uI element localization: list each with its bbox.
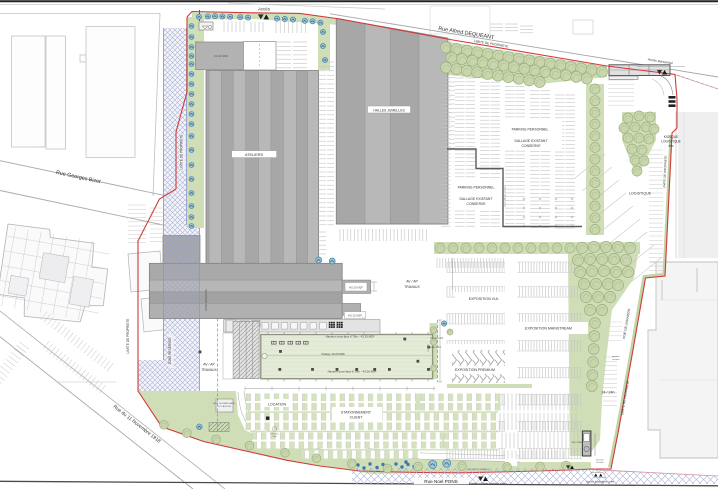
svg-text:41.20 M2F: 41.20 M2F bbox=[214, 54, 229, 58]
svg-text:EXPOSITION PREMIUM: EXPOSITION PREMIUM bbox=[455, 368, 495, 372]
svg-text:Clim: Clim bbox=[272, 436, 277, 438]
svg-text:HS 20 M2F: HS 20 M2F bbox=[348, 313, 362, 317]
svg-text:EXPOSITION MAINSTREAM: EXPOSITION MAINSTREAM bbox=[525, 327, 572, 331]
svg-text:Rue Noel PONS: Rue Noel PONS bbox=[424, 479, 457, 484]
svg-text:PARKING PERSONNEL: PARKING PERSONNEL bbox=[512, 127, 549, 131]
svg-text:Accès logistique crée: Accès logistique crée bbox=[586, 480, 615, 484]
svg-text:AV / AP: AV / AP bbox=[406, 279, 418, 283]
svg-text:TRAVAUX: TRAVAUX bbox=[404, 285, 420, 289]
svg-text:HS 20 M2F: HS 20 M2F bbox=[349, 286, 363, 290]
svg-text:Accès: Accès bbox=[258, 7, 270, 12]
svg-text:TRAVAUX: TRAVAUX bbox=[201, 368, 217, 372]
svg-text:ZONE RESERVEE: ZONE RESERVEE bbox=[204, 289, 208, 311]
svg-text:PG Ultra: PG Ultra bbox=[270, 433, 279, 436]
svg-text:AV / AP: AV / AP bbox=[203, 362, 215, 366]
svg-text:CLIENT: CLIENT bbox=[350, 416, 364, 420]
svg-text:RE 15 M2F: RE 15 M2F bbox=[572, 442, 583, 444]
svg-text:STATIONNEMENT: STATIONNEMENT bbox=[341, 411, 372, 415]
svg-text:LOGISTIQUE: LOGISTIQUE bbox=[661, 140, 680, 144]
svg-text:barrière: barrière bbox=[612, 355, 620, 358]
svg-text:KIOSQUE: KIOSQUE bbox=[664, 135, 679, 139]
svg-text:LOGISTIQUE: LOGISTIQUE bbox=[629, 191, 652, 195]
svg-text:PARKING PERSONNEL: PARKING PERSONNEL bbox=[458, 185, 495, 189]
svg-text:ZONE RESERVEE: ZONE RESERVEE bbox=[168, 337, 172, 364]
svg-text:CONSERVE: CONSERVE bbox=[522, 144, 542, 148]
svg-text:PORTAIL COULISSANT: PORTAIL COULISSANT bbox=[467, 468, 489, 471]
svg-text:levante: levante bbox=[612, 358, 620, 361]
svg-text:Hauteur sous-face 6.70m - 43: Hauteur sous-face 6.70m - 43.20 M2F bbox=[326, 335, 375, 339]
svg-text:24 / 24h: 24 / 24h bbox=[602, 391, 615, 395]
svg-text:DALLAGE EXISTANT: DALLAGE EXISTANT bbox=[460, 197, 493, 201]
svg-text:levante: levante bbox=[596, 461, 604, 464]
svg-text:OCCASIONS: OCCASIONS bbox=[218, 405, 232, 408]
svg-text:barrière: barrière bbox=[596, 459, 604, 462]
svg-text:EXPOSITION VUL: EXPOSITION VUL bbox=[469, 297, 499, 301]
svg-text:Voilage 10.20 M2F: Voilage 10.20 M2F bbox=[321, 352, 345, 356]
svg-text:Hauteur sous-face 6.70m - 43: Hauteur sous-face 6.70m - 43.20 M2F bbox=[328, 369, 377, 373]
svg-text:limite dallage existant: limite dallage existant bbox=[504, 185, 507, 206]
svg-text:LIMITE DE PROPRIETE: LIMITE DE PROPRIETE bbox=[180, 135, 184, 170]
svg-text:CONSERVE: CONSERVE bbox=[467, 202, 487, 206]
svg-text:AIRE DE MARCHAND.: AIRE DE MARCHAND. bbox=[213, 402, 236, 405]
svg-text:Entrée / Sortie parking client: Entrée / Sortie parking client bbox=[469, 482, 507, 486]
svg-text:DALLAGE EXISTANT: DALLAGE EXISTANT bbox=[515, 139, 548, 143]
svg-text:LOCATION: LOCATION bbox=[268, 402, 287, 406]
svg-text:LIMITE DE PROPRIETE: LIMITE DE PROPRIETE bbox=[126, 319, 130, 354]
svg-text:4m²: 4m² bbox=[668, 144, 674, 148]
svg-text:HALLES JUMELLES: HALLES JUMELLES bbox=[373, 109, 405, 113]
svg-text:ATELIERS: ATELIERS bbox=[245, 153, 264, 157]
